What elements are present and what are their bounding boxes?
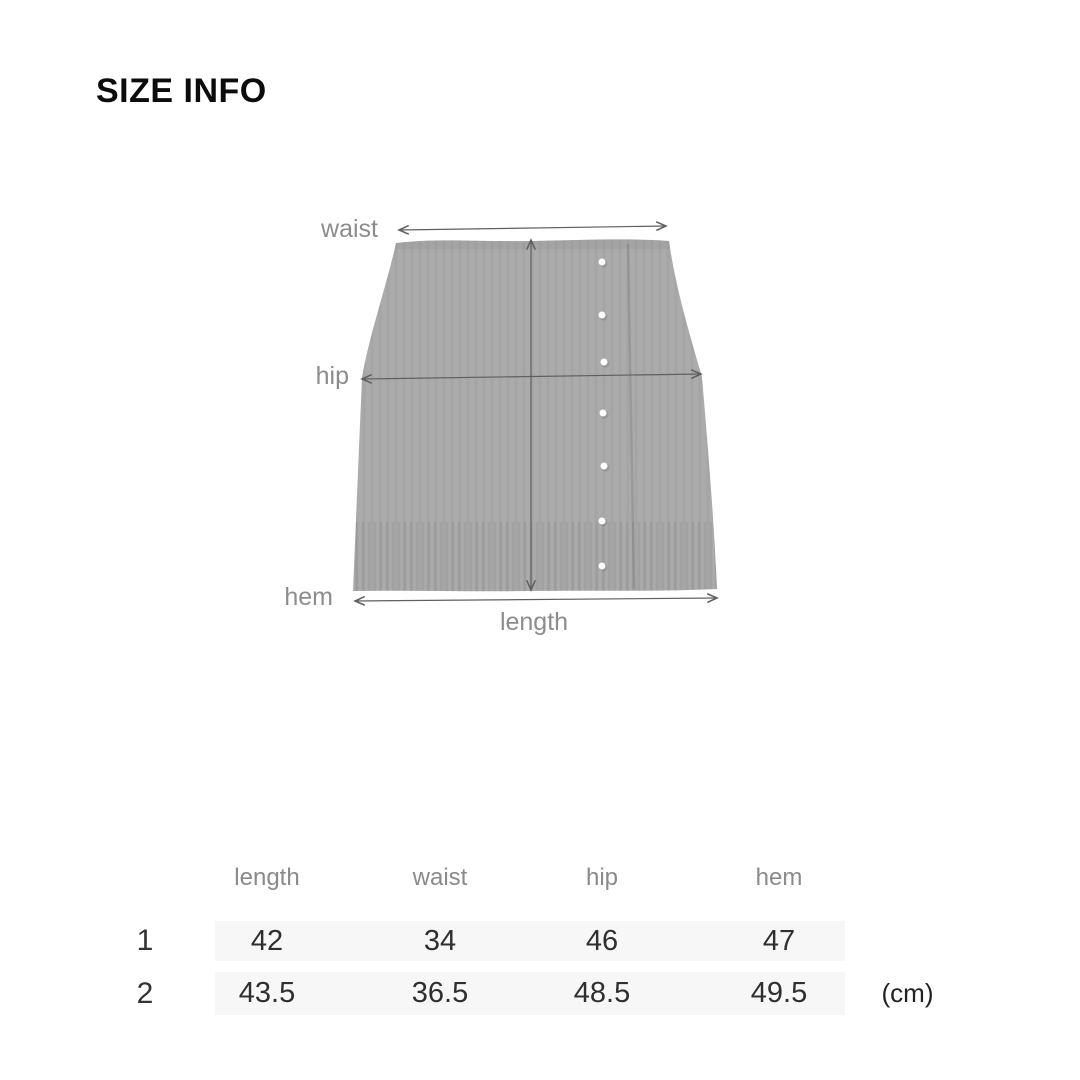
cell-size2-waist: 36.5 (355, 972, 525, 1015)
skirt-measurement-diagram (0, 0, 1080, 1080)
column-header-hip: hip (517, 864, 687, 892)
hip-label: hip (279, 362, 349, 390)
hem-measure-arrow (355, 598, 717, 601)
column-header-hem: hem (694, 864, 864, 892)
hem-label: hem (259, 583, 333, 611)
column-header-length: length (182, 864, 352, 892)
cell-size2-length: 43.5 (182, 972, 352, 1015)
waist-label: waist (298, 215, 378, 243)
size-info-page: SIZE INFO (0, 0, 1080, 1080)
row-label-size1: 1 (120, 921, 170, 961)
unit-label: (cm) (860, 972, 955, 1015)
cell-size2-hem: 49.5 (694, 972, 864, 1015)
length-label: length (464, 608, 604, 636)
column-header-waist: waist (355, 864, 525, 892)
cell-size1-hip: 46 (517, 921, 687, 961)
cell-size1-length: 42 (182, 921, 352, 961)
skirt-shape (340, 235, 730, 600)
waist-measure-arrow (399, 226, 666, 230)
row-label-size2: 2 (120, 972, 170, 1015)
cell-size1-waist: 34 (355, 921, 525, 961)
cell-size2-hip: 48.5 (517, 972, 687, 1015)
cell-size1-hem: 47 (694, 921, 864, 961)
